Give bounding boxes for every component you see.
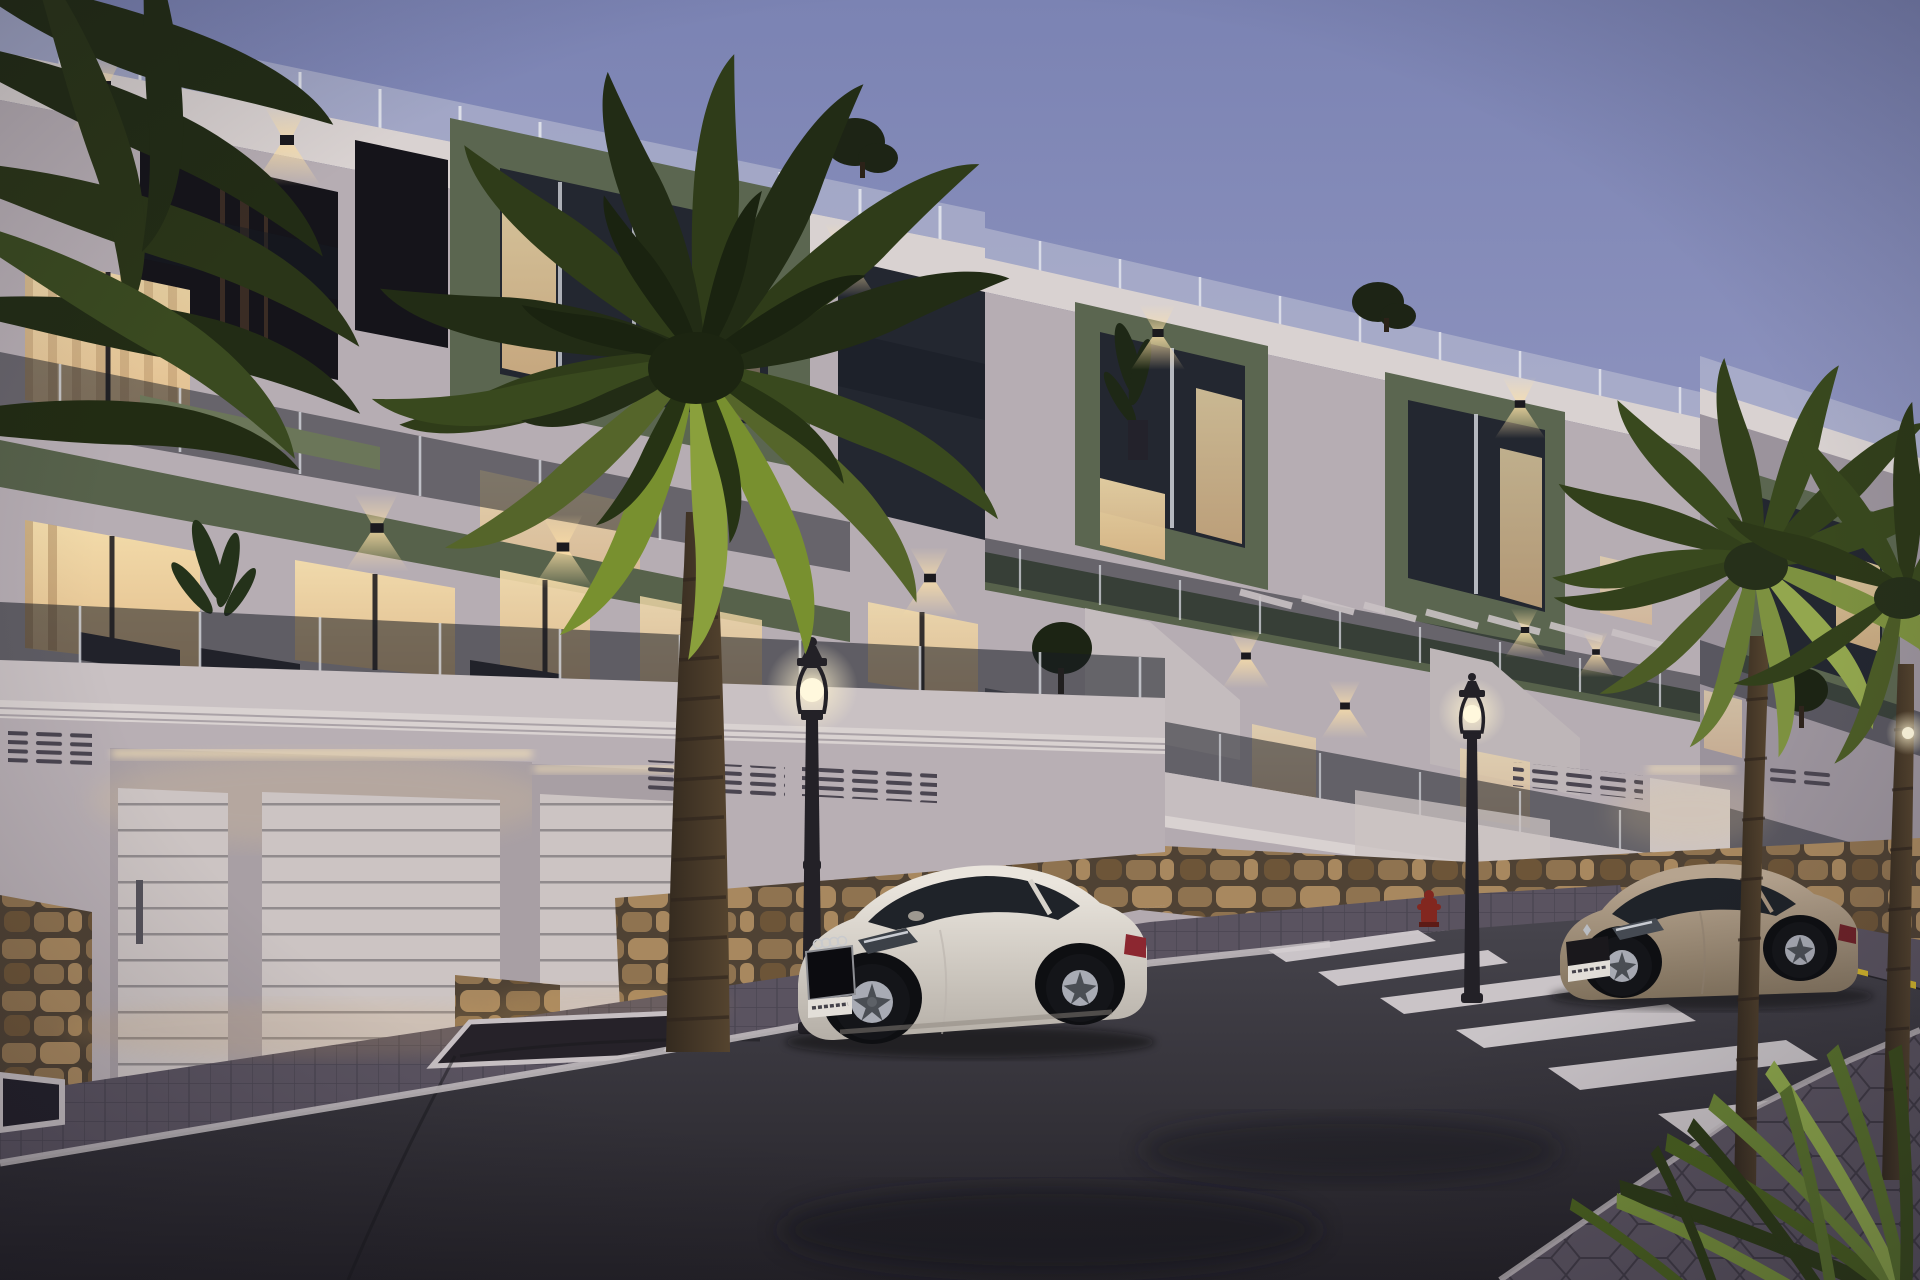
dusk-street-scene — [0, 0, 1920, 1280]
vignette — [0, 0, 1920, 1280]
